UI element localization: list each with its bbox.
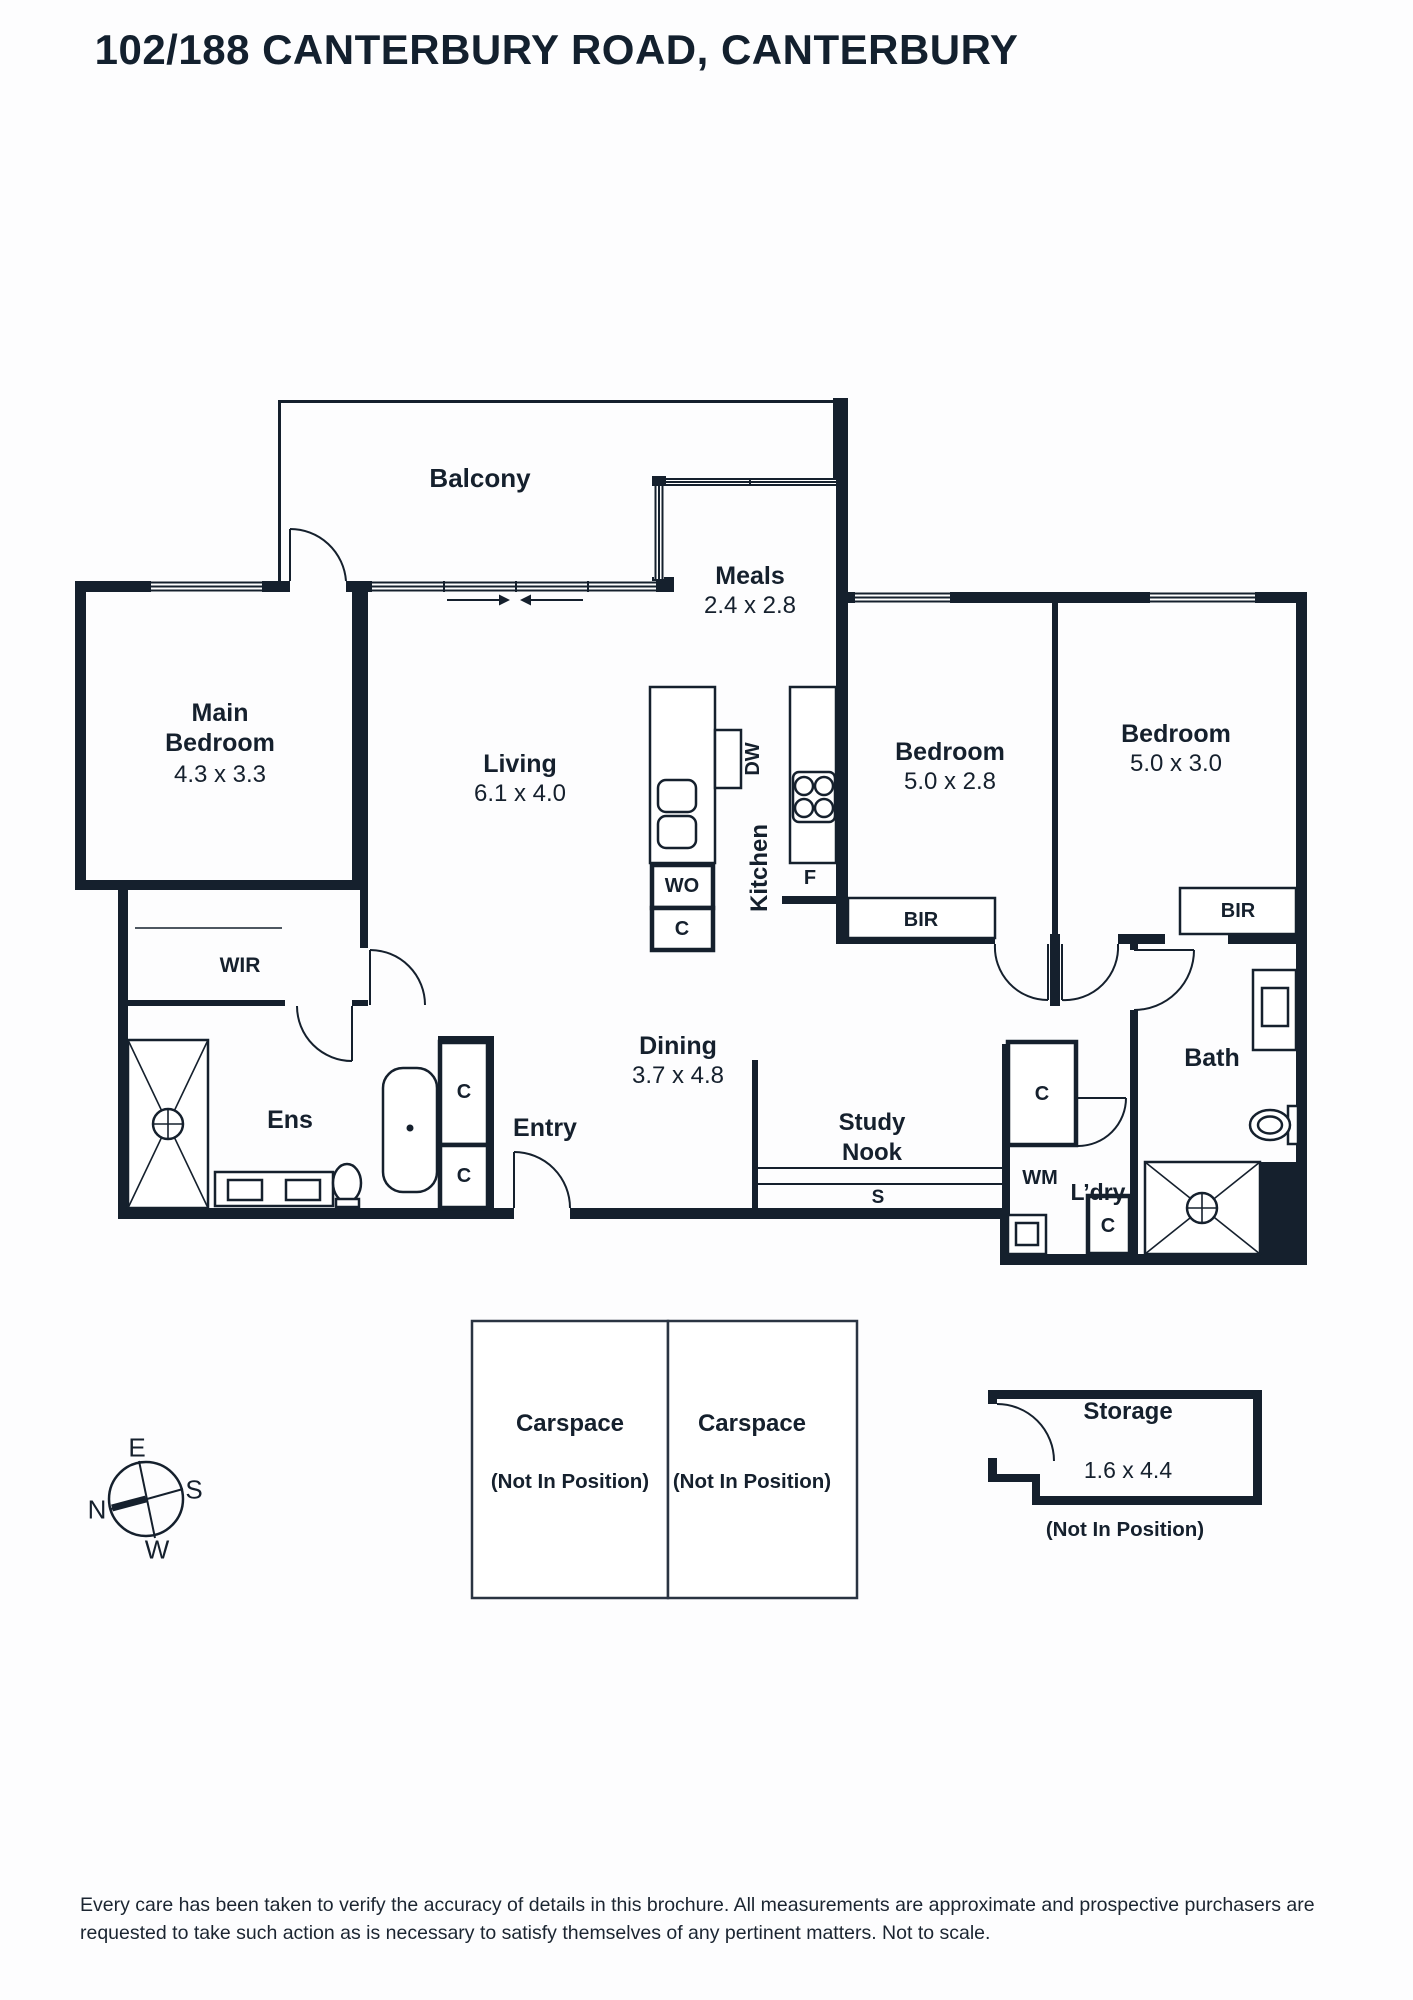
room-label-bedroom1: Bedroom bbox=[895, 737, 1005, 767]
fixture-label-s: S bbox=[872, 1188, 885, 1208]
bath-toilet bbox=[1250, 1106, 1298, 1144]
fixture-label-wm: WM bbox=[1022, 1168, 1058, 1188]
ens-shower bbox=[128, 1040, 208, 1208]
study-nook-wall bbox=[752, 1060, 758, 1208]
bedroom1-door bbox=[995, 944, 1048, 1000]
kitchen-bedroom-wall bbox=[836, 603, 848, 944]
top-wall-right-seg2 bbox=[950, 592, 1150, 603]
room-label-wir: WIR bbox=[220, 956, 261, 976]
sliding-door-window bbox=[372, 581, 656, 592]
service-duct-block bbox=[1260, 1162, 1296, 1254]
laundry-tub bbox=[1008, 1215, 1046, 1254]
ens-north-wall-a bbox=[128, 1000, 285, 1006]
fixture-label-c-entry1: C bbox=[457, 1082, 471, 1102]
outer-wall-right bbox=[1296, 592, 1307, 1265]
fixture-label-wo: WO bbox=[665, 876, 699, 896]
fixture-label-c-kitchen: C bbox=[675, 919, 689, 939]
fixture-label-bir1: BIR bbox=[904, 910, 938, 930]
ens-vanity bbox=[215, 1172, 333, 1206]
entry-door bbox=[514, 1152, 570, 1208]
top-wall-right-seg3 bbox=[1255, 592, 1307, 603]
compass-north-label: N bbox=[88, 1495, 107, 1526]
compass-east-label: E bbox=[128, 1433, 145, 1464]
room-label-ens: Ens bbox=[267, 1105, 313, 1135]
balcony-left-wall bbox=[278, 400, 281, 585]
outer-wall-left-lower bbox=[118, 885, 128, 1219]
bath-shower bbox=[1145, 1162, 1260, 1254]
meals-east-wall bbox=[836, 475, 848, 603]
bedroom1-window bbox=[855, 592, 950, 603]
sliding-direction-arrows bbox=[447, 595, 583, 606]
carspace1-name: Carspace bbox=[491, 1409, 649, 1439]
outer-wall-left-upper bbox=[75, 581, 86, 890]
outer-wall-bottom-right bbox=[1000, 1254, 1307, 1265]
room-dims-bedroom1: 5.0 x 2.8 bbox=[904, 769, 996, 795]
fixture-label-f: F bbox=[804, 868, 816, 888]
outer-wall-bottom-mid bbox=[570, 1208, 1010, 1219]
room-label-meals: Meals bbox=[715, 561, 784, 591]
room-dims-bedroom2: 5.0 x 3.0 bbox=[1130, 751, 1222, 777]
room-label-study-nook: Study Nook bbox=[839, 1108, 906, 1168]
meals-left-window bbox=[654, 486, 664, 579]
laundry-door bbox=[1078, 1098, 1126, 1146]
bedroom-divider-wall bbox=[1052, 603, 1058, 934]
room-dims-living: 6.1 x 4.0 bbox=[474, 781, 566, 807]
main-bedroom-right-wall bbox=[352, 581, 368, 885]
meals-top-window bbox=[652, 476, 836, 486]
carspace2-label: Carspace (Not In Position) bbox=[673, 1379, 831, 1525]
compass-west-label: W bbox=[145, 1535, 170, 1566]
room-dims-main-bedroom: 4.3 x 3.3 bbox=[174, 762, 266, 788]
room-label-entry: Entry bbox=[513, 1113, 577, 1143]
carspace2-note: (Not In Position) bbox=[673, 1469, 831, 1495]
top-wall-seg2 bbox=[262, 581, 290, 592]
room-dims-dining: 3.7 x 4.8 bbox=[632, 1063, 724, 1089]
bath-vanity bbox=[1253, 970, 1296, 1050]
kitchen-sink-bowl-2 bbox=[658, 816, 696, 848]
wir-east-wall bbox=[360, 883, 368, 948]
hall-lobby-door bbox=[370, 950, 425, 1005]
room-label-kitchen: Kitchen bbox=[745, 824, 775, 912]
room-label-laundry: L’dry bbox=[1071, 1177, 1126, 1207]
ens-north-wall-b bbox=[352, 1000, 368, 1006]
room-dims-meals: 2.4 x 2.8 bbox=[704, 593, 796, 619]
storage-dims: 1.6 x 4.4 bbox=[1083, 1457, 1172, 1483]
storage-note-label: (Not In Position) bbox=[1046, 1487, 1204, 1573]
dishwasher-box bbox=[715, 730, 741, 788]
bedroom-door-stub bbox=[1050, 934, 1060, 1006]
disclaimer-text: Every care has been taken to verify the … bbox=[80, 1892, 1370, 1947]
bathtub bbox=[383, 1068, 437, 1192]
main-bedroom-window bbox=[151, 581, 262, 592]
room-label-balcony: Balcony bbox=[429, 463, 530, 493]
carspace2-name: Carspace bbox=[673, 1409, 831, 1439]
cooktop bbox=[793, 772, 835, 822]
compass-rose bbox=[109, 1461, 183, 1538]
bedroom2-window bbox=[1150, 592, 1255, 603]
fridge-stub-wall bbox=[782, 896, 836, 904]
room-label-living: Living bbox=[483, 749, 557, 779]
storage-name: Storage bbox=[1083, 1397, 1172, 1427]
compass-south-label: S bbox=[185, 1475, 202, 1506]
fixture-label-c-laundry2: C bbox=[1101, 1216, 1115, 1236]
floorplan-drawing bbox=[0, 0, 1413, 2000]
fixture-label-dw: DW bbox=[743, 742, 763, 775]
bedroom2-bottom-wall-a bbox=[1118, 934, 1165, 944]
carspace1-note: (Not In Position) bbox=[491, 1469, 649, 1495]
fixture-label-c-laundry: C bbox=[1035, 1084, 1049, 1104]
room-label-main-bedroom: Main Bedroom bbox=[165, 698, 275, 758]
bath-door bbox=[1134, 950, 1194, 1010]
balcony-right-pier bbox=[833, 398, 848, 482]
balcony-door bbox=[290, 529, 346, 581]
storage-note: (Not In Position) bbox=[1046, 1517, 1204, 1543]
carspace1-label: Carspace (Not In Position) bbox=[491, 1379, 649, 1525]
bedroom2-bottom-wall-b bbox=[1228, 934, 1296, 944]
study-nook-shelf bbox=[758, 1168, 1002, 1184]
fixture-label-bir2: BIR bbox=[1221, 901, 1255, 921]
ens-door bbox=[297, 1006, 352, 1061]
room-label-bath: Bath bbox=[1184, 1043, 1240, 1073]
room-label-dining: Dining bbox=[639, 1031, 717, 1061]
ens-toilet bbox=[333, 1164, 361, 1207]
balcony-top-wall bbox=[278, 400, 836, 403]
main-bedroom-bottom-wall bbox=[75, 880, 368, 890]
floorplan-page: 102/188 CANTERBURY ROAD, CANTERBURY bbox=[0, 0, 1413, 2000]
bedroom2-door bbox=[1062, 944, 1118, 1000]
fixture-label-c-entry2: C bbox=[457, 1166, 471, 1186]
top-wall-seg1 bbox=[75, 581, 151, 592]
room-label-bedroom2: Bedroom bbox=[1121, 719, 1231, 749]
kitchen-sink-bowl-1 bbox=[658, 780, 696, 812]
